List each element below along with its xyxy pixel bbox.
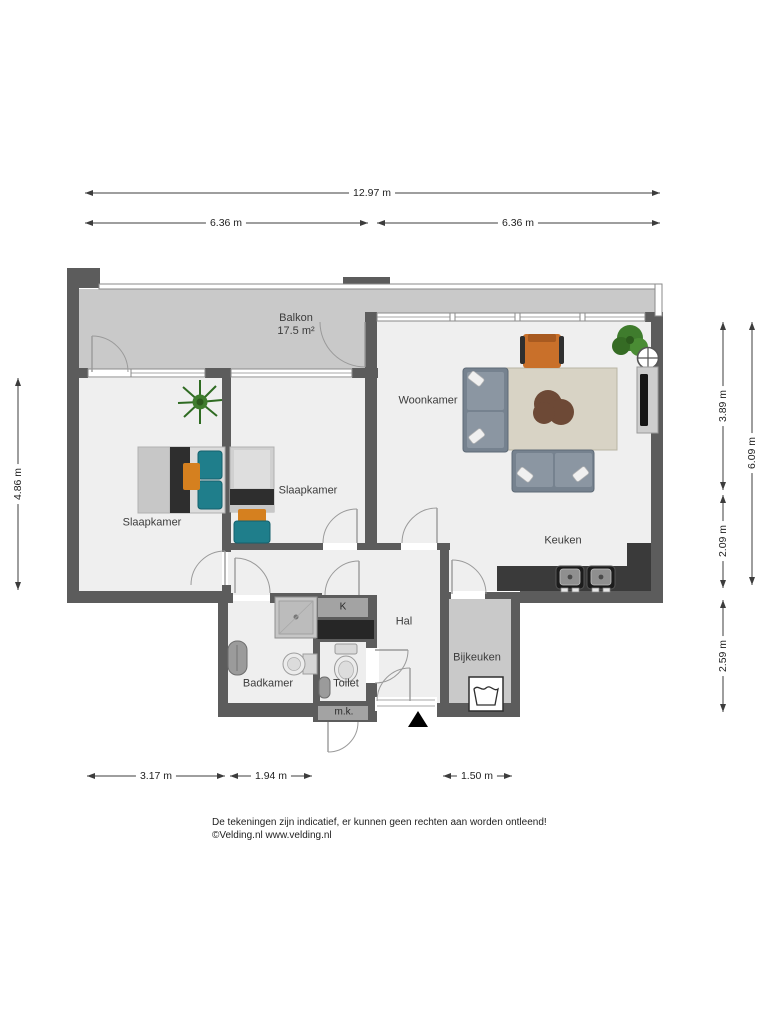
tv-cabinet-icon <box>637 367 658 433</box>
dimension-label-bottom-middle: 1.94 m <box>251 770 291 782</box>
dimension-label-top-left: 6.36 m <box>206 217 246 229</box>
armchair-icon <box>520 334 564 368</box>
kitchen-sink-icon <box>556 566 584 592</box>
room-label-hal: Hal <box>396 616 413 629</box>
dimension-label-right-lower: 2.59 m <box>717 636 729 676</box>
washing-machine-icon <box>469 677 503 711</box>
room-label-kast: K <box>340 601 347 614</box>
toilet-radiator-icon <box>319 677 330 698</box>
room-label-balkon: Balkon 17.5 m² <box>277 312 314 338</box>
dimension-label-bottom-right: 1.50 m <box>457 770 497 782</box>
dimension-label-right-upper: 3.89 m <box>717 386 729 426</box>
entrance-threshold <box>375 697 437 711</box>
door-meter-cupboard <box>328 722 358 752</box>
balkon-name: Balkon <box>277 312 314 325</box>
dimension-label-top-right: 6.36 m <box>498 217 538 229</box>
toilet-icon <box>335 644 358 682</box>
floorplan-page: Balkon 17.5 m² Woonkamer Slaapkamer Slaa… <box>0 0 773 1030</box>
dimension-label-right-middle: 2.09 m <box>717 521 729 561</box>
room-label-slaapkamer-left: Slaapkamer <box>123 517 182 530</box>
room-label-bijkeuken: Bijkeuken <box>453 652 501 665</box>
bathroom-sink-icon <box>283 653 317 675</box>
toilet-door-threshold <box>366 648 379 683</box>
dimension-label-total-width: 12.97 m <box>349 187 395 199</box>
bedroom-chair-icon <box>234 509 270 543</box>
shower-icon <box>275 597 317 638</box>
room-label-toilet: Toilet <box>333 678 359 691</box>
entrance-marker-icon <box>408 711 428 727</box>
bed-single-icon <box>230 447 274 512</box>
bed-double-icon <box>138 447 225 513</box>
dimension-label-right-total: 6.09 m <box>746 433 758 473</box>
floorplan-drawing <box>0 0 773 1030</box>
room-label-meterkast: m.k. <box>335 706 354 719</box>
balkon-area: 17.5 m² <box>277 325 314 338</box>
room-label-badkamer: Badkamer <box>243 678 293 691</box>
disclaimer: De tekeningen zijn indicatief, er kunnen… <box>212 817 547 842</box>
radiator-icon <box>228 641 247 675</box>
dark-cabinet <box>316 620 374 639</box>
dimension-label-left-side: 4.86 m <box>12 464 24 504</box>
kitchen-sink-icon <box>587 566 615 592</box>
dimension-label-bottom-left: 3.17 m <box>136 770 176 782</box>
disclaimer-line1: De tekeningen zijn indicatief, er kunnen… <box>212 817 547 830</box>
room-label-woonkamer: Woonkamer <box>398 395 457 408</box>
room-label-slaapkamer-mid: Slaapkamer <box>279 485 338 498</box>
room-label-keuken: Keuken <box>544 535 581 548</box>
disclaimer-line2: ©Velding.nl www.velding.nl <box>212 830 547 843</box>
ceiling-light-icon <box>638 348 659 369</box>
